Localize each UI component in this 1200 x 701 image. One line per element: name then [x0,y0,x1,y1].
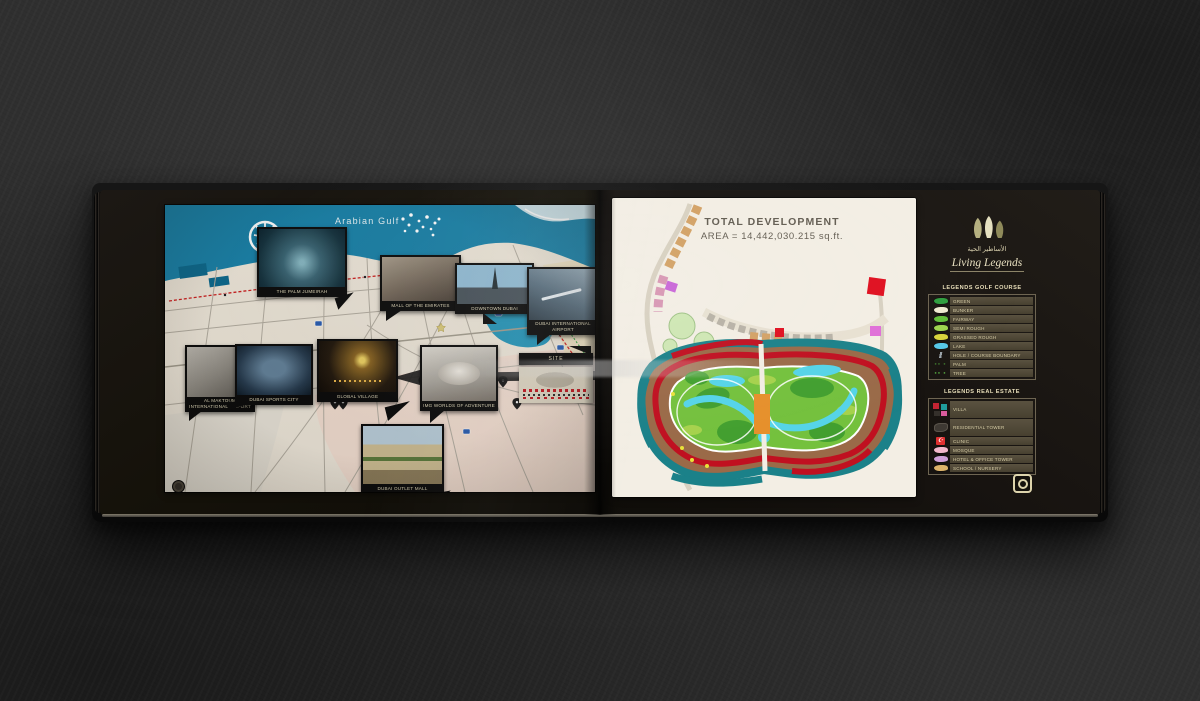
legend-swatch-icon [931,446,950,454]
legend-row: LAKE [931,342,1033,350]
swatch-legend-glyph [934,456,948,462]
callout-pointer [483,313,497,324]
legend-row: GREEN [931,297,1033,305]
legend-swatch-icon [931,360,950,368]
swatch-legend-glyph [934,316,948,322]
landmark-photo-global-village [319,341,396,392]
callout-global-village: GLOBAL VILLAGE [317,339,398,402]
legend-swatch-icon [931,306,950,314]
legend-label: HOLE / COURSE BOUNDARY [950,351,1033,359]
title-line-2: AREA = 14,442,030.215 sq.ft. [664,231,880,242]
site-plan-thumbnail [519,367,593,403]
legend-row: VILLA [931,401,1033,418]
line-legend-glyph [933,352,948,358]
swatch-legend-glyph [934,298,948,304]
swatch-legend-glyph [934,334,948,340]
living-legends-logo: الأساطير الحية Living Legends [935,216,1039,272]
legend-row: GRASSED ROUGH [931,333,1033,341]
legend-swatch-icon [931,351,950,359]
landmark-photo-img-worlds [422,347,496,401]
callout-palm-jumeirah: THE PALM JUMEIRAH [257,227,347,297]
legend-label: SEMI ROUGH [950,324,1033,332]
legend-swatch-icon [931,369,950,377]
legend-label: BUNKER [950,306,1033,314]
legend-row: TREE [931,369,1033,377]
landmark-photo-outlet-mall [363,426,442,484]
legend-label: GREEN [950,297,1033,305]
dots-legend-glyph [934,362,946,366]
legend-label: SCHOOL / NURSERY [950,464,1033,472]
callout-label: DUBAI SPORTS CITY [237,395,311,403]
legend-swatch-icon [931,419,950,436]
legend-label: PALM [950,360,1033,368]
legend-label: MOSQUE [950,446,1033,454]
legend-row: SCHOOL / NURSERY [931,464,1033,472]
villa-legend-glyph [933,403,948,417]
callout-label: GLOBAL VILLAGE [319,392,396,400]
legend-label: RESIDENTIAL TOWER [950,419,1033,436]
callout-site: SITE [519,353,593,409]
legend-swatch-icon [931,437,950,445]
legend-swatch-icon [931,333,950,341]
compass-emblem-icon [1013,474,1032,493]
dots-legend-glyph [934,371,946,375]
legend-label: FAIRWAY [950,315,1033,323]
callout-dubai-sports-city: DUBAI SPORTS CITY [235,344,313,405]
photo-backdrop: ✈ ✈ Business Bay Arabian Gulf THE PALM J… [0,0,1200,701]
legend-row: MOSQUE [931,446,1033,454]
legend-label: HOTEL & OFFICE TOWER [950,455,1033,463]
callout-label: THE PALM JUMEIRAH [259,287,345,295]
callout-label: IMG WORLDS OF ADVENTURE [422,401,496,409]
callout-img-worlds: IMG WORLDS OF ADVENTURE [420,345,498,411]
tower-legend-glyph [934,423,948,432]
master-plan-artwork [612,198,916,497]
legend-swatch-icon [931,401,950,418]
golf-legend-heading: LEGENDS GOLF COURSE [928,285,1036,291]
swatch-legend-glyph [934,307,948,313]
callout-label: DUBAI INTERNATIONAL AIRPORT [529,320,595,333]
legend-row: RESIDENTIAL TOWER [931,419,1033,436]
sea-label: Arabian Gulf [335,216,399,226]
legend-label: TREE [950,369,1033,377]
brand-arabic-text: الأساطير الحية [935,245,1039,253]
legend-row: FAIRWAY [931,315,1033,323]
callout-pointer [430,410,445,423]
landmark-photo-sports-city [237,346,311,395]
estate-legend-table: VILLA RESIDENTIAL TOWER CLINIC MOSQUE HO… [928,398,1036,475]
swatch-legend-glyph [934,325,948,331]
legend-row: BUNKER [931,306,1033,314]
legend-label: CLINIC [950,437,1033,445]
callout-downtown-dubai: DOWNTOWN DUBAI [455,263,534,314]
legend-swatch-icon [931,342,950,350]
logo-towers-icon [965,216,1009,238]
callout-dubai-international-airport: DUBAI INTERNATIONAL AIRPORT [527,267,595,335]
legend-row: HOTEL & OFFICE TOWER [931,455,1033,463]
legend-label: LAKE [950,342,1033,350]
callout-pointer [189,411,202,421]
landmark-photo-mall [382,257,459,301]
callout-dubai-outlet-mall: DUBAI OUTLET MALL [361,424,444,492]
golf-legend-table: GREEN BUNKER FAIRWAY SEMI ROUGH GRASSED … [928,294,1036,380]
legend-swatch-icon [931,464,950,472]
page-corner-emblem [172,480,185,493]
legend-label: VILLA [950,401,1033,418]
legend-swatch-icon [931,315,950,323]
landmark-photo-dxb [529,269,595,320]
legend-row: PALM [931,360,1033,368]
landmark-photo-palm [259,229,345,287]
crescent-legend-glyph [936,437,945,445]
brand-name: Living Legends [950,257,1025,272]
callout-pointer [569,346,591,355]
master-plan-panel: TOTAL DEVELOPMENT AREA = 14,442,030.215 … [612,198,916,497]
legend-row: CLINIC [931,437,1033,445]
legend-row: SEMI ROUGH [931,324,1033,332]
legend-label: GRASSED ROUGH [950,333,1033,341]
callout-pointer [386,310,402,321]
legend-swatch-icon [931,455,950,463]
callout-label: MALL OF THE EMIRATES [382,301,459,309]
estate-legend-heading: LEGENDS REAL ESTATE [928,389,1036,395]
callout-label: DUBAI OUTLET MALL [363,484,442,492]
open-brochure-book: ✈ ✈ Business Bay Arabian Gulf THE PALM J… [92,183,1108,522]
page-bottom-edge [102,514,1098,517]
legend-swatch-icon [931,324,950,332]
callout-label: DOWNTOWN DUBAI [457,304,532,312]
legend-swatch-icon [931,297,950,305]
swatch-legend-glyph [934,343,948,349]
swatch-legend-glyph [934,465,948,471]
callout-pointer [537,334,551,345]
dubai-location-map: ✈ ✈ Business Bay Arabian Gulf THE PALM J… [165,205,595,492]
callout-mall-of-the-emirates: MALL OF THE EMIRATES [380,255,461,311]
total-development-title: TOTAL DEVELOPMENT AREA = 14,442,030.215 … [664,216,880,242]
legend-row: HOLE / COURSE BOUNDARY [931,351,1033,359]
landmark-photo-downtown [457,265,532,304]
title-line-1: TOTAL DEVELOPMENT [664,216,880,228]
swatch-legend-glyph [934,447,948,453]
